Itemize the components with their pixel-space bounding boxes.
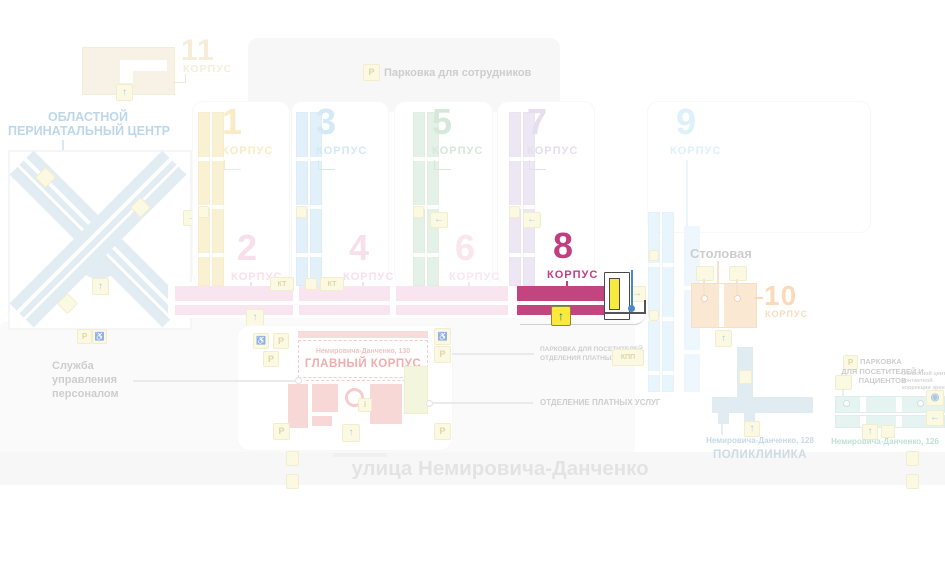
arrow-glyph: ↑ [558, 310, 564, 322]
hospital-campus-map: P Парковка для сотрудников ↑ 11 КОРПУС О… [0, 0, 945, 587]
building-8-number[interactable]: 8 [553, 228, 574, 264]
map-marker-pole [631, 270, 633, 308]
fence-line [604, 312, 646, 314]
fence-line [644, 300, 646, 313]
entrance-arrow-icon-highlighted[interactable]: ↑ [551, 306, 571, 326]
building-8-label: КОРПУС [547, 270, 598, 281]
building-8-selected-section[interactable] [609, 278, 620, 310]
building-8-highlight-layer: 8 КОРПУС ↑ [0, 0, 945, 587]
map-marker[interactable] [628, 305, 635, 312]
